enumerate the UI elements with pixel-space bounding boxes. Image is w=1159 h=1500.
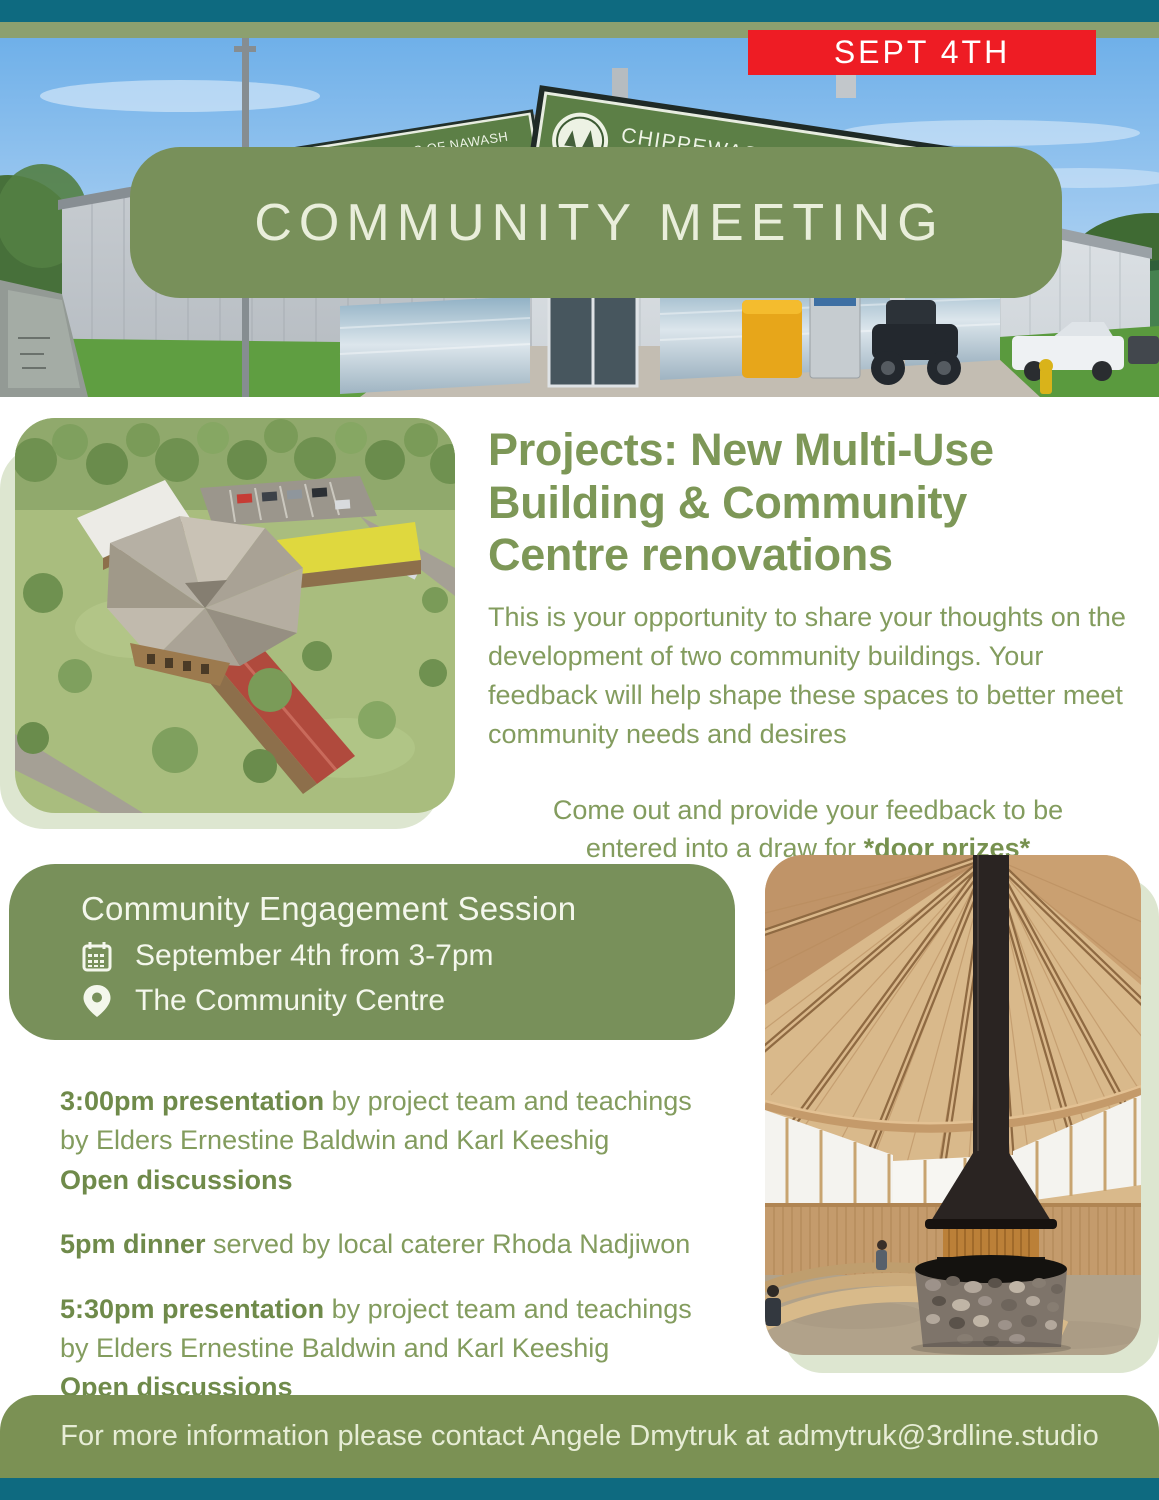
- footer-contact-text: For more information please contact Ange…: [60, 1420, 1098, 1453]
- session-date: September 4th from 3-7pm: [135, 939, 494, 973]
- interior-render-image: [765, 855, 1141, 1355]
- session-info-box: Community Engagement Session September 4…: [9, 864, 735, 1040]
- projects-body: This is your opportunity to share your t…: [488, 598, 1128, 755]
- date-banner: SEPT 4TH: [748, 30, 1096, 75]
- suv: [1128, 336, 1159, 364]
- fire-hydrant: [1039, 359, 1053, 394]
- kiosk: [810, 284, 860, 378]
- bottom-teal-strip: [0, 1478, 1159, 1500]
- date-banner-label: SEPT 4TH: [834, 34, 1010, 71]
- yellow-bin: [742, 300, 802, 378]
- session-location-row: The Community Centre: [81, 984, 715, 1018]
- location-pin-icon: [81, 985, 113, 1017]
- schedule-item: 5:30pm presentation by project team and …: [60, 1290, 710, 1408]
- interior-render-illustration: [765, 855, 1141, 1355]
- poster-title: COMMUNITY MEETING: [247, 193, 944, 253]
- calendar-icon: [81, 940, 113, 972]
- aerial-render-image: [15, 418, 455, 813]
- entrance-door: [549, 296, 637, 386]
- community-meeting-flyer: CHIPPEWAS OF NAWASH UNCEDED FIRST NATION…: [0, 0, 1159, 1500]
- schedule-item: 3:00pm presentation by project team and …: [60, 1082, 710, 1200]
- session-location: The Community Centre: [135, 984, 445, 1018]
- poster-title-pill: COMMUNITY MEETING: [130, 147, 1062, 298]
- person-sitting: [876, 1240, 887, 1270]
- person-left: [765, 1285, 781, 1326]
- top-teal-strip: [0, 0, 1159, 22]
- schedule-item: 5pm dinner served by local caterer Rhoda…: [60, 1225, 710, 1264]
- projects-heading: Projects: New Multi-Use Building & Commu…: [488, 424, 1116, 582]
- schedule-section: 3:00pm presentation by project team and …: [60, 1082, 710, 1433]
- session-title: Community Engagement Session: [81, 890, 715, 928]
- projects-section: Projects: New Multi-Use Building & Commu…: [488, 424, 1128, 868]
- session-date-row: September 4th from 3-7pm: [81, 939, 715, 973]
- footer-contact-bar: For more information please contact Ange…: [0, 1395, 1159, 1478]
- aerial-render-illustration: [15, 418, 455, 813]
